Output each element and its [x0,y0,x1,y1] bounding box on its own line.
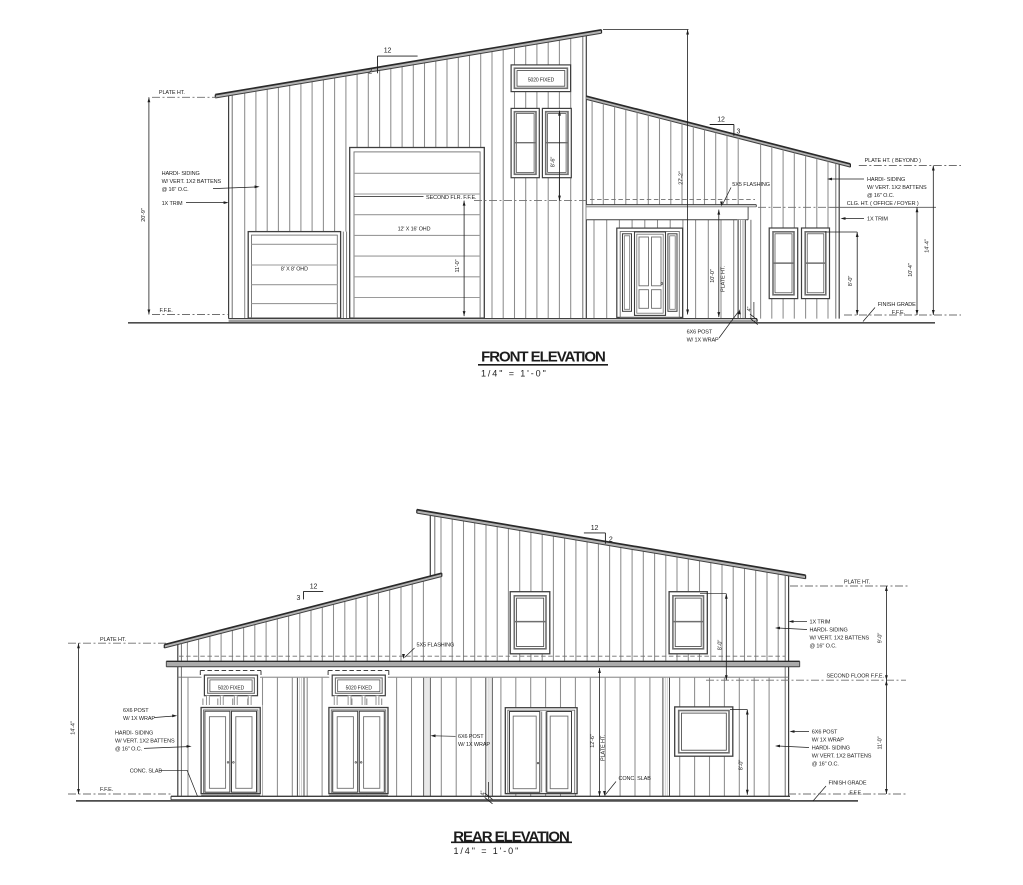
svg-text:HARDI- SIDING: HARDI- SIDING [867,177,905,183]
svg-text:27'-2": 27'-2" [679,171,685,185]
svg-text:14'-4": 14'-4" [924,239,930,253]
svg-text:12'-6": 12'-6" [590,734,596,748]
svg-text:8'-0": 8'-0" [848,276,854,287]
svg-text:8' X 8' OHD: 8' X 8' OHD [281,267,308,273]
svg-text:@ 16" O.C.: @ 16" O.C. [810,644,838,650]
svg-text:1/4" = 1'-0": 1/4" = 1'-0" [454,846,521,856]
svg-text:12' X 16' OHD: 12' X 16' OHD [398,227,431,233]
svg-text:HARDI- SIDING: HARDI- SIDING [162,171,200,177]
svg-text:CONC. SLAB: CONC. SLAB [619,776,652,782]
svg-text:@ 16" O.C.: @ 16" O.C. [162,187,190,193]
svg-text:W/ VERT. 1X2 BATTENS: W/ VERT. 1X2 BATTENS [812,754,872,760]
svg-text:F.F.E.: F.F.E. [160,308,174,314]
svg-text:5020 FIXED: 5020 FIXED [528,78,555,84]
svg-text:20'-9": 20'-9" [141,208,147,222]
svg-text:W/ VERT. 1X2 BATTENS: W/ VERT. 1X2 BATTENS [867,185,927,191]
svg-text:5X5 FLASHING: 5X5 FLASHING [417,643,455,649]
svg-text:3: 3 [737,129,741,136]
svg-text:HARDI- SIDING: HARDI- SIDING [115,731,153,737]
svg-text:1X TRIM: 1X TRIM [867,217,888,223]
svg-text:W/ 1X WRAP: W/ 1X WRAP [812,738,844,744]
svg-text:6X6 POST: 6X6 POST [812,730,838,736]
svg-text:@ 16" O.C.: @ 16" O.C. [812,762,840,768]
svg-text:12: 12 [717,117,725,124]
svg-text:8'-6": 8'-6" [551,157,557,168]
svg-text:@ 16" O.C.: @ 16" O.C. [115,747,143,753]
svg-text:8'-0": 8'-0" [717,640,723,651]
svg-text:12: 12 [310,584,318,591]
svg-text:@ 16" O.C.: @ 16" O.C. [867,193,895,199]
svg-text:PLATE HT. ( BEYOND ): PLATE HT. ( BEYOND ) [865,158,922,164]
svg-text:CLG. HT. ( OFFICE / FOYER ): CLG. HT. ( OFFICE / FOYER ) [847,201,919,207]
svg-text:W/ 1X WRAP: W/ 1X WRAP [458,742,490,748]
svg-text:F.F.E.: F.F.E. [100,787,114,793]
svg-text:10'-4": 10'-4" [908,263,914,277]
svg-text:12: 12 [591,525,599,532]
svg-text:5020 FIXED: 5020 FIXED [218,685,245,691]
svg-text:1/4" = 1'-0": 1/4" = 1'-0" [481,369,548,379]
svg-text:W/ 1X WRAP: W/ 1X WRAP [687,338,719,344]
svg-text:W/ VERT. 1X2 BATTENS: W/ VERT. 1X2 BATTENS [162,179,222,185]
svg-text:4": 4" [481,790,487,795]
svg-text:6X6 POST: 6X6 POST [123,708,149,714]
svg-text:2: 2 [609,537,613,544]
svg-text:5020 FIXED: 5020 FIXED [346,685,373,691]
svg-text:11'-0": 11'-0" [877,736,883,749]
svg-text:FRONT ELEVATION: FRONT ELEVATION [481,349,605,366]
svg-text:10'-0": 10'-0" [710,269,716,283]
svg-text:W/ 1X WRAP: W/ 1X WRAP [123,716,155,722]
svg-text:CONC. SLAB: CONC. SLAB [130,768,163,774]
svg-text:12: 12 [384,48,392,55]
svg-text:14'-4": 14'-4" [71,721,77,735]
svg-text:PLATE HT.: PLATE HT. [100,637,126,643]
svg-text:8'-0": 8'-0" [738,760,744,771]
svg-text:SECOND FLR. F.F.E.: SECOND FLR. F.F.E. [426,195,477,201]
svg-text:5X5 FLASHING: 5X5 FLASHING [732,182,770,188]
svg-text:W/ VERT. 1X2 BATTENS: W/ VERT. 1X2 BATTENS [115,739,175,745]
svg-text:PLATE HT.: PLATE HT. [721,265,727,291]
svg-text:HARDI- SIDING: HARDI- SIDING [812,746,850,752]
svg-text:3: 3 [297,595,301,602]
svg-text:SECOND FLOOR F.F.E.: SECOND FLOOR F.F.E. [827,674,885,680]
svg-text:F.F.E.: F.F.E. [849,791,863,797]
svg-text:PLATE HT.: PLATE HT. [844,580,870,586]
svg-text:F.F.E.: F.F.E. [892,310,906,316]
svg-text:W/ VERT. 1X2 BATTENS: W/ VERT. 1X2 BATTENS [810,636,870,642]
svg-text:PLATE HT.: PLATE HT. [601,734,607,760]
svg-text:2: 2 [368,69,372,76]
svg-text:1X TRIM: 1X TRIM [162,201,183,207]
svg-text:11'-0": 11'-0" [455,259,461,272]
svg-text:1X TRIM: 1X TRIM [810,620,831,626]
svg-text:6X6 POST: 6X6 POST [458,734,484,740]
svg-text:PLATE HT.: PLATE HT. [159,90,185,96]
svg-text:4": 4" [747,306,753,311]
svg-text:FINISH GRADE: FINISH GRADE [829,781,867,787]
svg-text:FINISH GRADE: FINISH GRADE [878,302,916,308]
svg-text:6X6 POST: 6X6 POST [687,330,713,336]
svg-text:HARDI- SIDING: HARDI- SIDING [810,628,848,634]
svg-text:9'-0": 9'-0" [877,633,883,644]
